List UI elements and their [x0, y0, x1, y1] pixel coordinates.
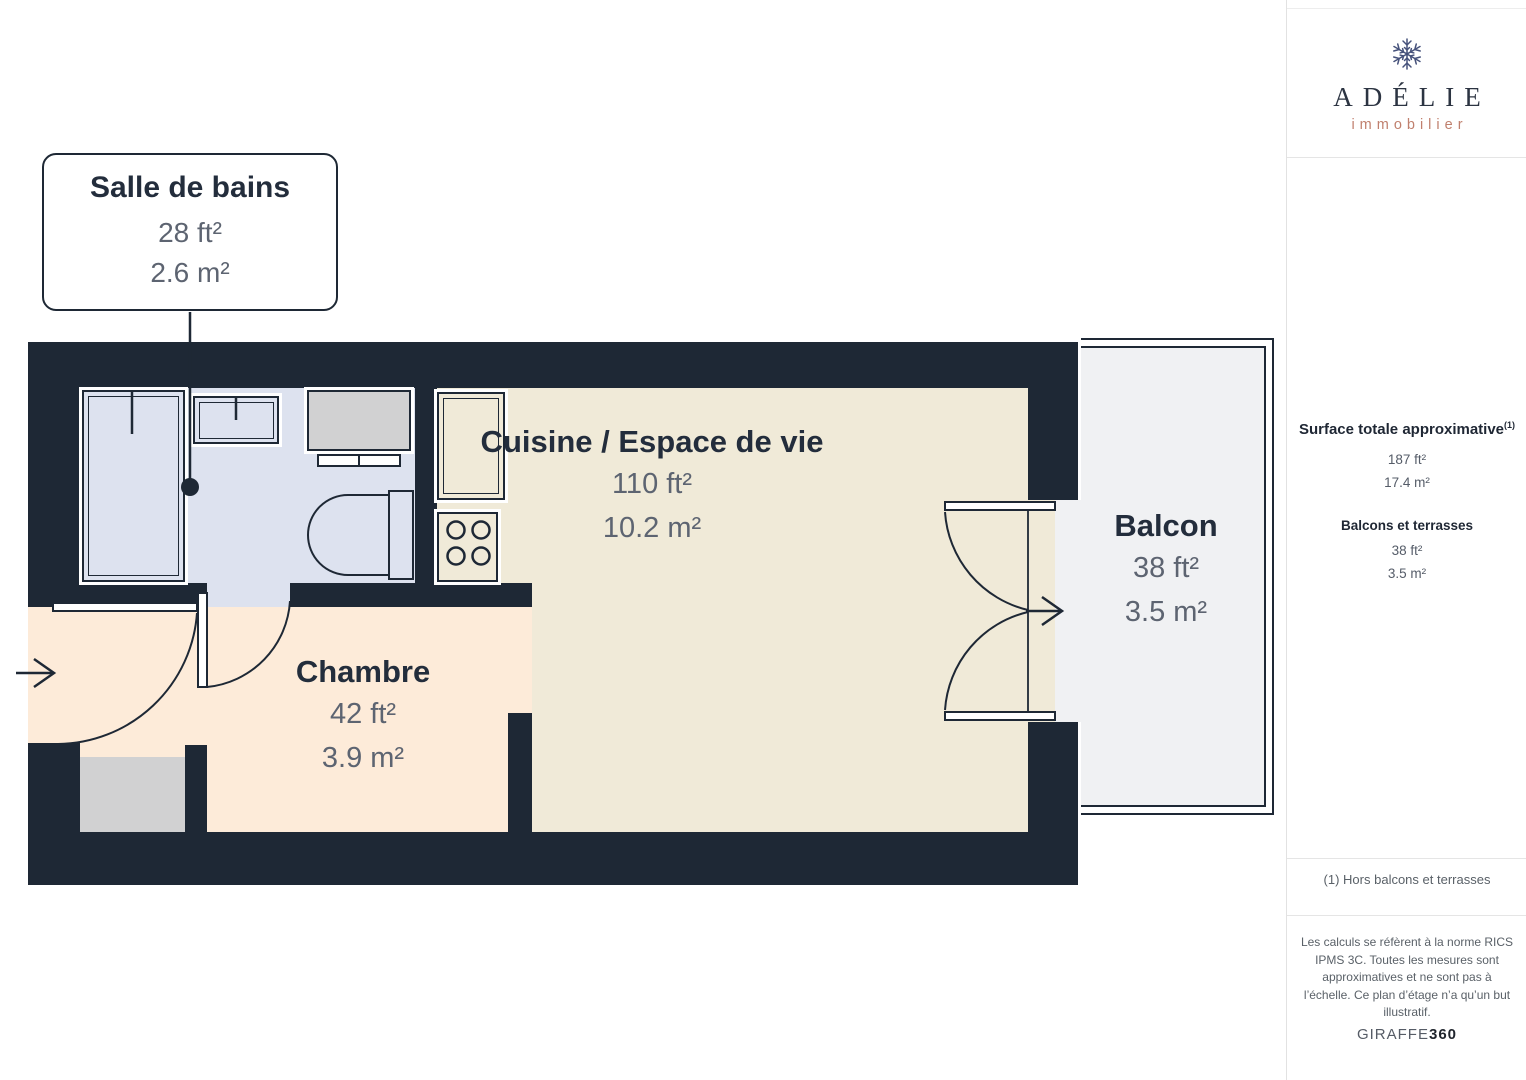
- legal-line: Les calculs se réfèrent à la norme RICS: [1287, 934, 1526, 952]
- balcony-door-threshold: [1028, 500, 1055, 722]
- bedroom-label: Chambre 42 ft² 3.9 m²: [296, 652, 430, 780]
- balcony-label: Balcon 38 ft² 3.5 m²: [1114, 506, 1217, 634]
- total-surface-ft: 187 ft²: [1287, 448, 1526, 471]
- total-surface-title-text: Surface totale approximative: [1299, 421, 1504, 438]
- bedroom-label-title: Chambre: [296, 652, 430, 692]
- balconies-m: 3.5 m²: [1287, 562, 1526, 585]
- brand-block: ADÉLIE immobilier: [1287, 36, 1526, 133]
- total-surface-title: Surface totale approximative(1): [1287, 420, 1526, 438]
- kitchen-label: Cuisine / Espace de vie 110 ft² 10.2 m²: [481, 422, 824, 550]
- info-sidebar: ADÉLIE immobilier Surface totale approxi…: [1286, 0, 1526, 1080]
- balcony-area-ft: 38 ft²: [1114, 546, 1217, 590]
- brand-tagline: immobilier: [1287, 117, 1526, 133]
- balcony-door-landing: [1055, 500, 1081, 722]
- closet-wall-stub: [185, 745, 207, 832]
- balconies-title: Balcons et terrasses: [1287, 518, 1526, 533]
- bedroom-area-m: 3.9 m²: [296, 736, 430, 780]
- sidebar-top-divider: [1287, 8, 1526, 9]
- kitchen-area-ft: 110 ft²: [481, 462, 824, 506]
- legal-line: IPMS 3C. Toutes les mesures sont: [1287, 952, 1526, 970]
- shower-tray: [88, 396, 179, 576]
- floor-plan: Salle de bains 28 ft² 2.6 m² Cuisine / E…: [0, 0, 1286, 1080]
- living-floor: [532, 583, 1028, 832]
- footnote-divider-top: [1287, 858, 1526, 859]
- closet: [80, 757, 185, 832]
- bathroom-callout-title: Salle de bains: [44, 169, 336, 207]
- entrance-floor: [28, 607, 80, 743]
- floor-plan-page: { "plan": { "callout": { "title": "Salle…: [0, 0, 1526, 1080]
- legal-line: l’échelle. Ce plan d’étage n’a qu’un but: [1287, 987, 1526, 1005]
- toilet-bowl: [307, 494, 391, 576]
- bathroom-callout: Salle de bains 28 ft² 2.6 m²: [42, 153, 338, 311]
- footnote: (1) Hors balcons et terrasses: [1287, 872, 1526, 887]
- footnote-divider-bottom: [1287, 915, 1526, 916]
- brand-name: ADÉLIE: [1287, 82, 1526, 113]
- bedroom-passage: [508, 607, 532, 713]
- giraffe360-text: GIRAFFE: [1357, 1026, 1429, 1043]
- balcony-label-title: Balcon: [1114, 506, 1217, 546]
- total-surface-footref: (1): [1504, 420, 1515, 430]
- bathroom-sink: [193, 396, 279, 444]
- giraffe360-watermark: GIRAFFE360: [1287, 1026, 1526, 1043]
- legal-line: illustratif.: [1287, 1004, 1526, 1022]
- balcony-area-m: 3.5 m²: [1114, 590, 1217, 634]
- kitchen-label-title: Cuisine / Espace de vie: [481, 422, 824, 462]
- bathroom-area-m: 2.6 m²: [44, 253, 336, 293]
- legal-text: Les calculs se réfèrent à la norme RICS …: [1287, 934, 1526, 1022]
- bathroom-area-ft: 28 ft²: [44, 213, 336, 253]
- bathroom-doorway: [207, 583, 290, 607]
- logo-divider: [1287, 157, 1526, 158]
- balconies-ft: 38 ft²: [1287, 539, 1526, 562]
- giraffe360-number: 360: [1429, 1026, 1457, 1043]
- total-surface-m: 17.4 m²: [1287, 471, 1526, 494]
- shower: [82, 390, 185, 582]
- toilet-tank: [388, 490, 414, 580]
- washing-machine: [307, 390, 411, 451]
- legal-line: approximatives et ne sont pas à: [1287, 969, 1526, 987]
- snowflake-icon: [1389, 36, 1425, 72]
- sink-basin: [199, 402, 274, 439]
- bedroom-area-ft: 42 ft²: [296, 692, 430, 736]
- surface-summary: Surface totale approximative(1) 187 ft² …: [1287, 420, 1526, 585]
- kitchen-area-m: 10.2 m²: [481, 506, 824, 550]
